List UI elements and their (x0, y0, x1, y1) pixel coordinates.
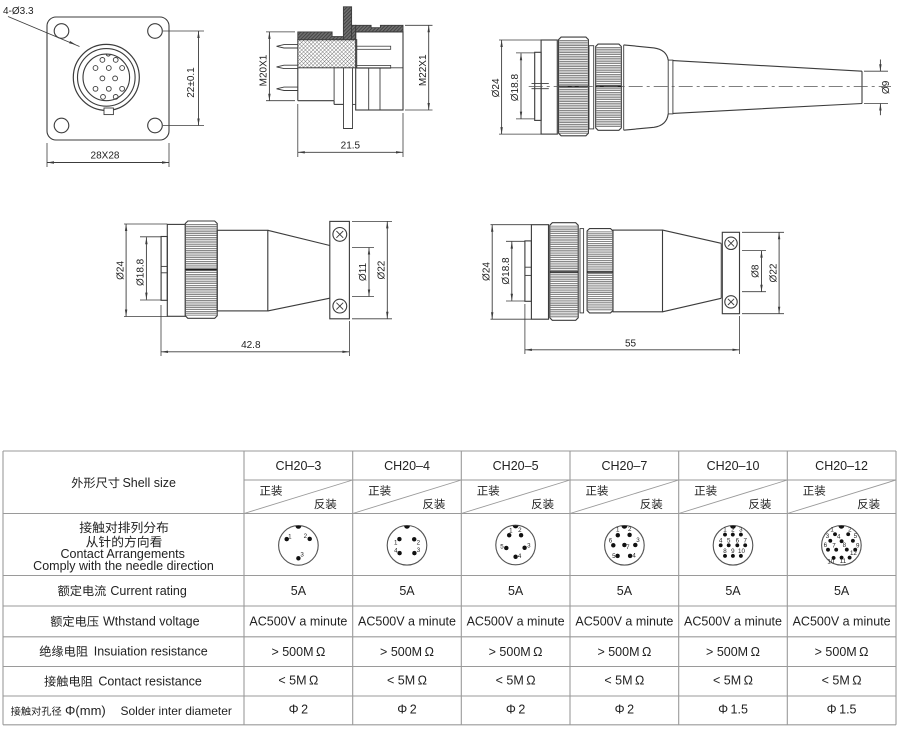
svg-text:Φ(mm): Φ(mm) (65, 703, 106, 718)
svg-text:AC500V a minute: AC500V a minute (575, 615, 673, 629)
svg-text:7: 7 (626, 544, 630, 551)
svg-text:2: 2 (304, 533, 308, 540)
svg-text:Ø22: Ø22 (377, 260, 388, 279)
svg-text:Φ 2: Φ 2 (615, 702, 634, 716)
svg-text:4: 4 (719, 537, 723, 544)
svg-text:3: 3 (739, 527, 743, 534)
svg-text:5: 5 (854, 533, 858, 540)
svg-text:AC500V a minute: AC500V a minute (358, 615, 456, 629)
svg-text:8: 8 (723, 548, 727, 555)
svg-text:3: 3 (826, 533, 830, 540)
svg-text:AC500V a minute: AC500V a minute (684, 615, 782, 629)
svg-text:Ø18.8: Ø18.8 (510, 74, 521, 102)
svg-text:Φ 1.5: Φ 1.5 (718, 702, 748, 716)
svg-text:Ø24: Ø24 (481, 262, 492, 281)
svg-text:2: 2 (417, 540, 421, 547)
svg-text:Shell size: Shell size (122, 476, 176, 490)
svg-text:Ø18.8: Ø18.8 (501, 257, 512, 285)
svg-text:Ø9: Ø9 (881, 80, 892, 94)
svg-text:4: 4 (632, 553, 636, 560)
svg-text:3: 3 (527, 543, 531, 550)
svg-text:> 500M Ω: > 500M Ω (815, 645, 869, 659)
svg-text:AC500V a minute: AC500V a minute (467, 615, 565, 629)
svg-text:7: 7 (832, 542, 836, 549)
svg-text:Ø24: Ø24 (491, 78, 502, 97)
svg-text:M20X1: M20X1 (259, 54, 270, 86)
svg-text:< 5M Ω: < 5M Ω (604, 673, 644, 687)
svg-text:Solder inter diameter: Solder inter diameter (121, 704, 232, 718)
svg-text:21.5: 21.5 (341, 141, 361, 152)
svg-text:Φ 2: Φ 2 (506, 702, 525, 716)
svg-text:CH20–12: CH20–12 (815, 459, 868, 473)
svg-text:Ø8: Ø8 (751, 264, 762, 278)
svg-text:Φ 1.5: Φ 1.5 (827, 702, 857, 716)
svg-text:< 5M Ω: < 5M Ω (387, 673, 427, 687)
svg-text:Insuiation resistance: Insuiation resistance (94, 644, 208, 658)
svg-text:Φ 2: Φ 2 (289, 702, 308, 716)
svg-text:8: 8 (843, 542, 847, 549)
svg-text:1: 1 (288, 533, 292, 540)
svg-text:Ø22: Ø22 (768, 263, 779, 282)
svg-text:5: 5 (612, 553, 616, 560)
svg-text:42.8: 42.8 (241, 340, 261, 351)
svg-text:CH20–7: CH20–7 (601, 459, 647, 473)
svg-text:> 500M Ω: > 500M Ω (597, 645, 651, 659)
svg-text:4: 4 (518, 553, 522, 560)
svg-text:< 5M Ω: < 5M Ω (278, 673, 318, 687)
svg-text:3: 3 (417, 547, 421, 554)
svg-text:28X28: 28X28 (91, 151, 120, 162)
svg-text:6: 6 (736, 537, 740, 544)
svg-text:< 5M Ω: < 5M Ω (713, 673, 753, 687)
svg-text:2: 2 (518, 527, 522, 534)
svg-text:Ø24: Ø24 (115, 261, 126, 280)
svg-text:3: 3 (636, 537, 640, 544)
svg-text:Wthstand voltage: Wthstand voltage (103, 615, 200, 629)
svg-text:4: 4 (394, 547, 398, 554)
svg-text:CH20–5: CH20–5 (493, 459, 539, 473)
svg-text:5A: 5A (291, 584, 307, 598)
svg-text:> 500M Ω: > 500M Ω (271, 645, 325, 659)
svg-text:> 500M Ω: > 500M Ω (706, 645, 760, 659)
svg-text:< 5M Ω: < 5M Ω (822, 673, 862, 687)
svg-text:AC500V a minute: AC500V a minute (249, 615, 347, 629)
svg-text:> 500M Ω: > 500M Ω (489, 645, 543, 659)
svg-text:11: 11 (840, 558, 847, 565)
svg-text:10: 10 (827, 558, 834, 565)
svg-text:Ø11: Ø11 (358, 262, 369, 281)
svg-text:5A: 5A (617, 584, 633, 598)
svg-text:1: 1 (830, 527, 834, 534)
svg-text:4: 4 (837, 533, 841, 540)
svg-text:5A: 5A (508, 584, 524, 598)
svg-text:9: 9 (731, 548, 735, 555)
svg-text:6: 6 (824, 542, 828, 549)
svg-text:Comply with the needle directi: Comply with the needle direction (33, 559, 214, 573)
svg-text:55: 55 (625, 338, 637, 349)
svg-text:2: 2 (628, 526, 632, 533)
svg-text:Ø18.8: Ø18.8 (136, 258, 147, 286)
svg-text:9: 9 (856, 542, 860, 549)
svg-text:6: 6 (609, 537, 613, 544)
svg-text:1: 1 (509, 527, 513, 534)
svg-text:7: 7 (743, 537, 747, 544)
svg-text:5A: 5A (834, 584, 850, 598)
svg-text:CH20–3: CH20–3 (275, 459, 321, 473)
svg-text:12: 12 (850, 550, 857, 557)
svg-text:10: 10 (738, 548, 745, 555)
svg-text:1: 1 (616, 527, 620, 534)
svg-text:Φ 2: Φ 2 (397, 702, 416, 716)
svg-text:M22X1: M22X1 (418, 54, 429, 86)
svg-text:1: 1 (723, 527, 727, 534)
svg-text:CH20–4: CH20–4 (384, 459, 430, 473)
svg-text:Current rating: Current rating (110, 584, 186, 598)
svg-text:Contact resistance: Contact resistance (98, 674, 202, 688)
svg-text:4-Ø3.3: 4-Ø3.3 (3, 6, 34, 17)
svg-text:2: 2 (848, 527, 852, 534)
svg-text:5: 5 (727, 537, 731, 544)
svg-text:5A: 5A (399, 584, 415, 598)
svg-text:5: 5 (500, 543, 504, 550)
svg-text:2: 2 (731, 527, 735, 534)
svg-text:3: 3 (300, 551, 304, 558)
svg-text:> 500M Ω: > 500M Ω (380, 645, 434, 659)
svg-text:22±0.1: 22±0.1 (186, 67, 197, 98)
svg-text:AC500V a minute: AC500V a minute (793, 615, 891, 629)
svg-text:1: 1 (394, 539, 398, 546)
svg-text:5A: 5A (725, 584, 741, 598)
svg-text:CH20–10: CH20–10 (707, 459, 760, 473)
svg-text:< 5M Ω: < 5M Ω (496, 673, 536, 687)
